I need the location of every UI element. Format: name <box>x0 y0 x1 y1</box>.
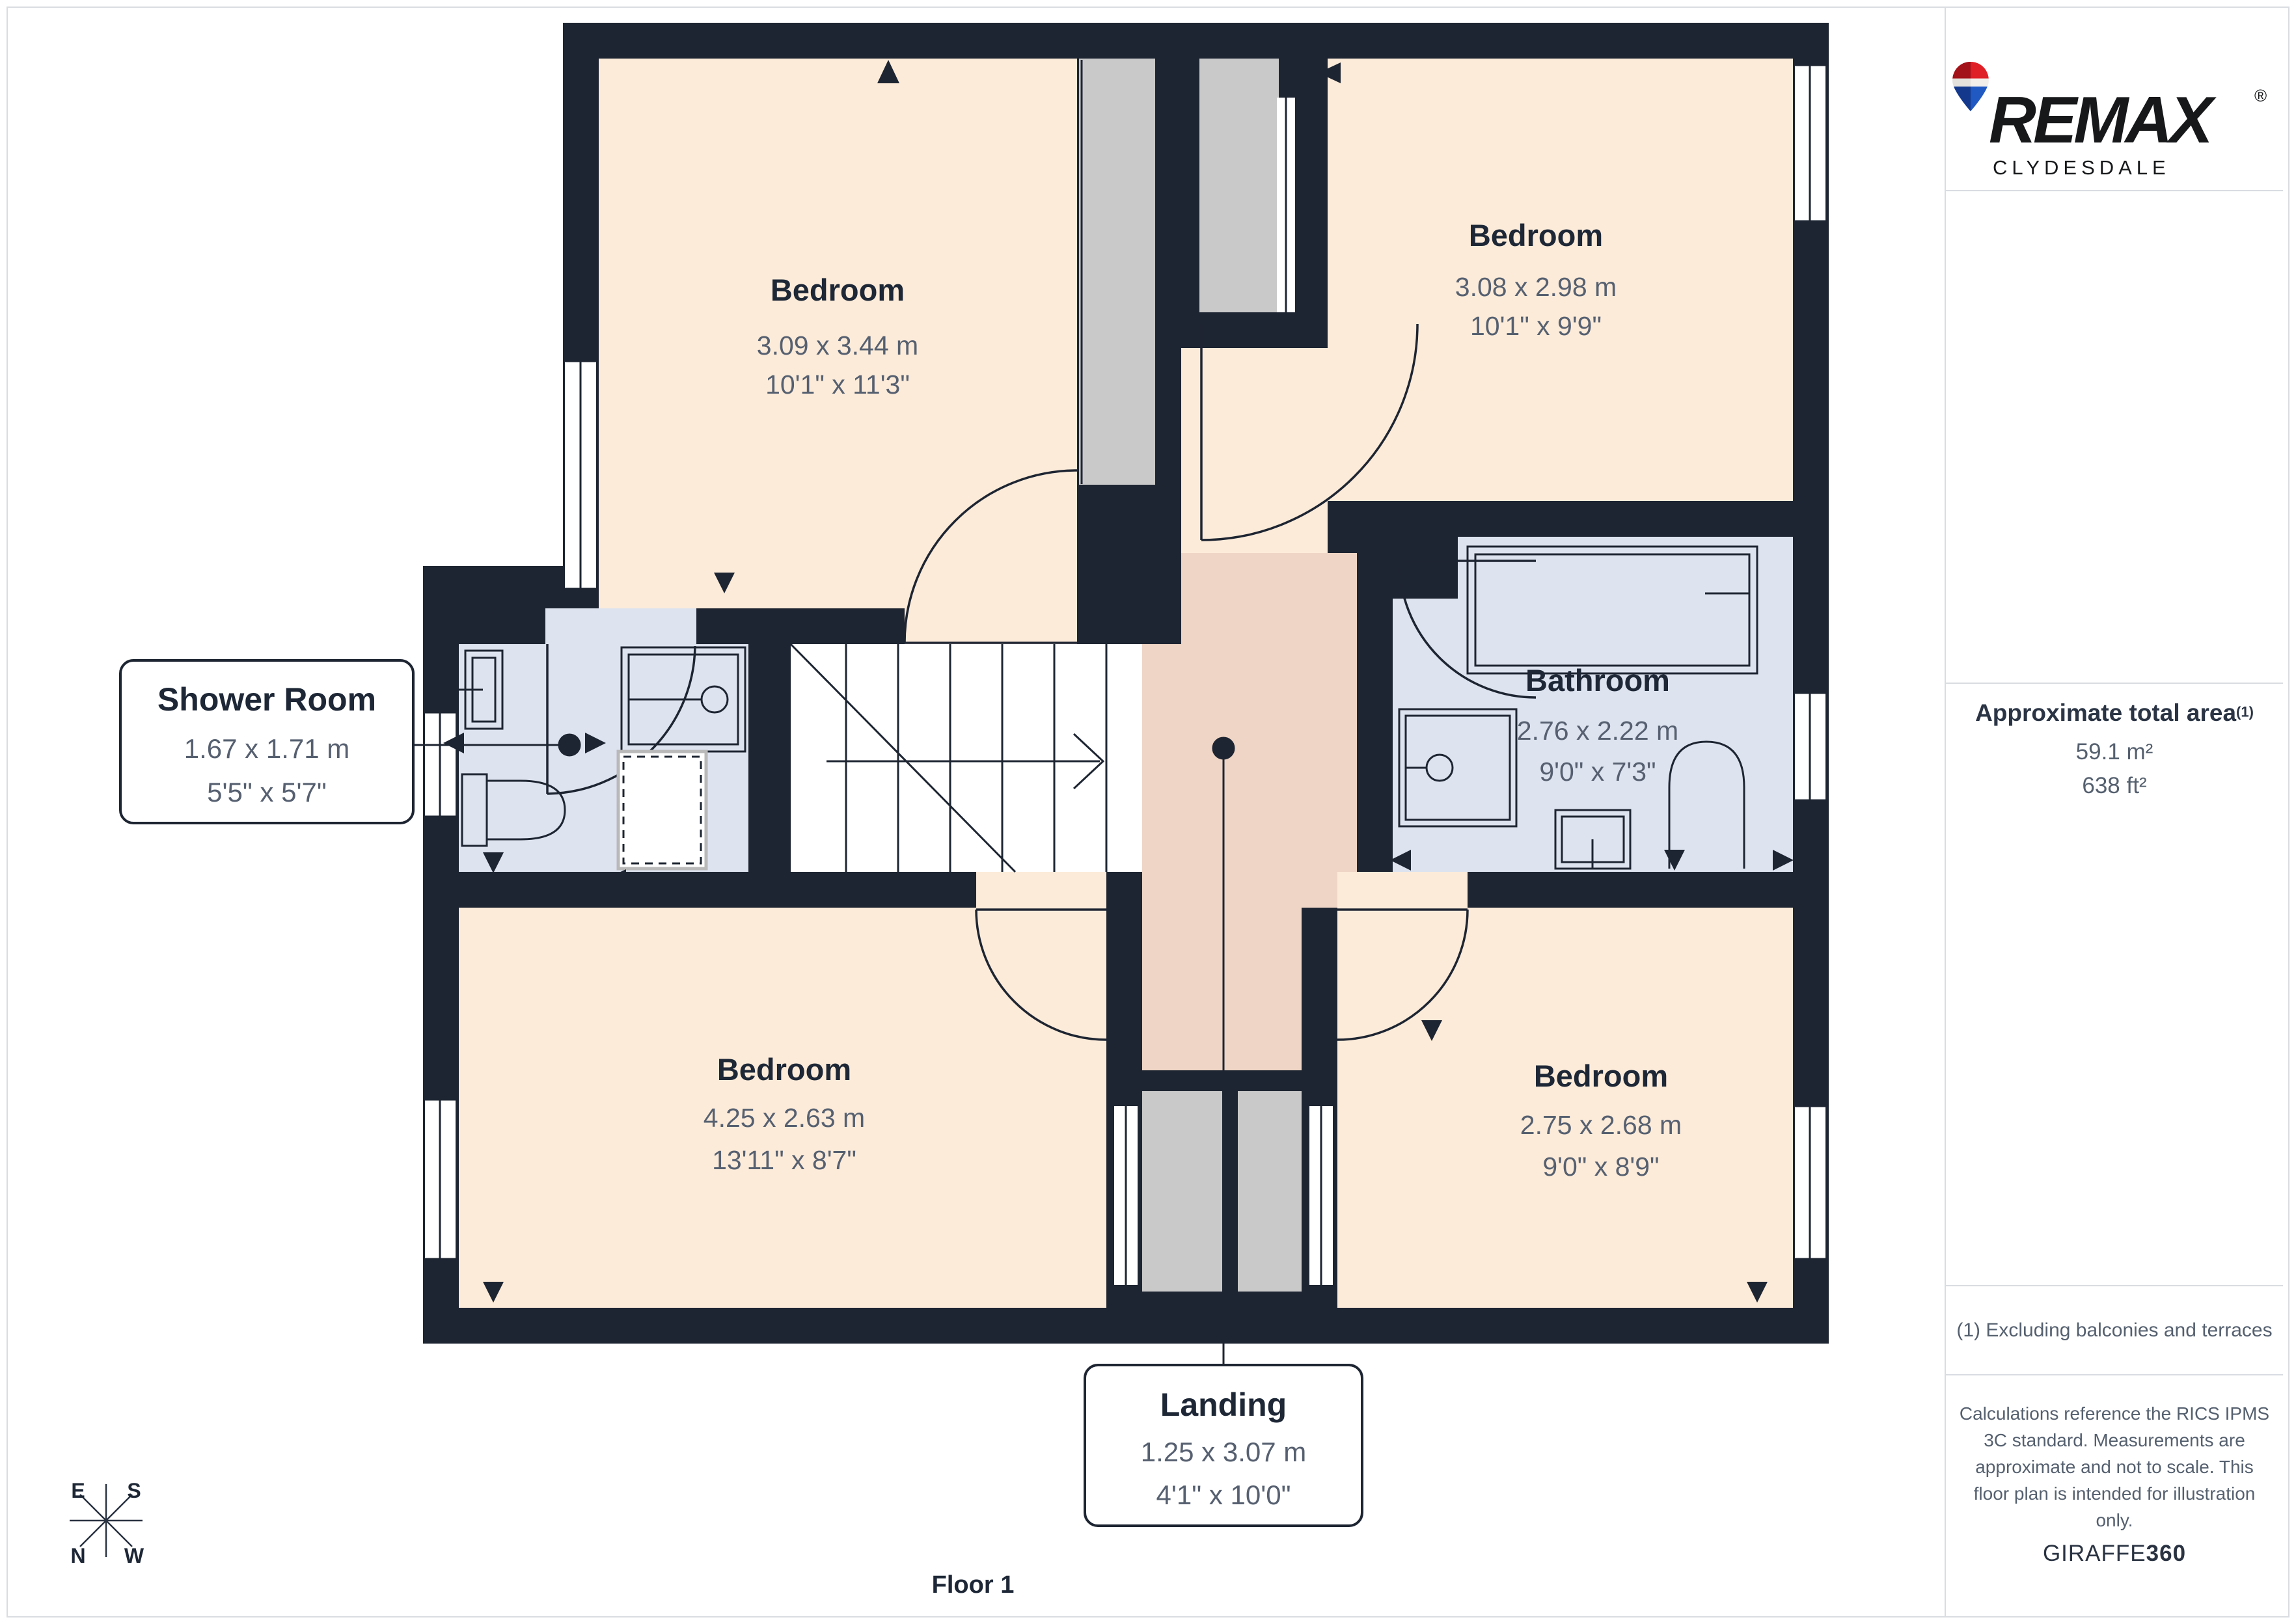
floor-plan: Bedroom 3.09 x 3.44 m 10'1" x 11'3" Bedr… <box>0 0 1945 1624</box>
compass-w: W <box>124 1544 144 1567</box>
window-bedroom-br <box>1795 1106 1825 1259</box>
area-metric: 59.1 m² <box>1946 739 2283 765</box>
disclaimer-text: Calculations reference the RICS IPMS 3C … <box>1959 1400 2270 1534</box>
compass-e: E <box>71 1479 85 1502</box>
remax-office-name: CLYDESDALE <box>1993 156 2170 180</box>
callout-shower-room: Shower Room 1.67 x 1.71 m 5'5" x 5'7" <box>120 660 413 823</box>
void-shaft-bottom-left <box>1142 1091 1222 1292</box>
area-summary: Approximate total area(1) <box>1946 699 2283 727</box>
landing-leader-dot <box>1213 738 1234 759</box>
bedroom-br-floor <box>1337 908 1793 1308</box>
window-void-right <box>1309 1106 1333 1285</box>
room-dim-metric: 1.67 x 1.71 m <box>184 733 349 764</box>
room-dim-metric: 3.09 x 3.44 m <box>757 331 918 360</box>
room-dim-metric: 1.25 x 3.07 m <box>1141 1437 1306 1467</box>
label-bedroom-tl: Bedroom 3.09 x 3.44 m 10'1" x 11'3" <box>757 273 918 399</box>
giraffe360-credit: GIRAFFE360 <box>1946 1541 2283 1567</box>
storage-hatch <box>618 751 706 869</box>
room-dim-metric: 4.25 x 2.63 m <box>704 1103 865 1133</box>
room-name: Bedroom <box>1469 218 1603 252</box>
room-dim-imperial: 10'1" x 9'9" <box>1470 311 1602 341</box>
window-bathroom <box>1795 693 1825 800</box>
void-shaft-bottom-right <box>1238 1091 1302 1292</box>
room-name: Bathroom <box>1525 663 1670 697</box>
door-gap-shower <box>545 608 696 644</box>
stairs-floor <box>791 644 1142 872</box>
window-bedroom-tr <box>1795 65 1825 221</box>
area-title-footnote-marker: (1) <box>2236 704 2254 720</box>
sidebar-rule-4 <box>1946 1374 2283 1375</box>
window-void-left <box>1114 1106 1138 1285</box>
label-bedroom-bl: Bedroom 4.25 x 2.63 m 13'11" x 8'7" <box>704 1052 865 1175</box>
room-name: Landing <box>1160 1387 1287 1423</box>
giraffe-suffix: 360 <box>2146 1541 2186 1566</box>
area-imperial: 638 ft² <box>1946 773 2283 799</box>
room-dim-imperial: 4'1" x 10'0" <box>1156 1480 1291 1510</box>
room-dim-imperial: 5'5" x 5'7" <box>207 777 327 807</box>
window-shaft-right <box>1277 98 1295 312</box>
door-gap-bedroom-tl <box>905 608 1077 644</box>
sidebar-rule-3 <box>1946 1285 2283 1286</box>
sidebar-rule-1 <box>1946 190 2283 191</box>
window-bedroom-tl <box>565 361 596 589</box>
door-gap-bedroom-bl <box>976 872 1106 908</box>
stair-shaft-right <box>1199 59 1279 312</box>
room-dim-imperial: 9'0" x 8'9" <box>1542 1152 1659 1182</box>
window-shower-room <box>425 712 456 817</box>
floor-label: Floor 1 <box>932 1571 1015 1599</box>
room-dim-imperial: 9'0" x 7'3" <box>1539 757 1656 787</box>
compass-icon: E S N W <box>70 1479 144 1567</box>
room-name: Shower Room <box>157 681 376 718</box>
room-dim-imperial: 13'11" x 8'7" <box>712 1145 856 1175</box>
label-bedroom-tr: Bedroom 3.08 x 2.98 m 10'1" x 9'9" <box>1455 218 1617 341</box>
window-bedroom-bl <box>425 1100 456 1259</box>
registered-mark: ® <box>2254 86 2267 106</box>
area-title: Approximate total area <box>1975 699 2236 726</box>
stair-shaft-left <box>1079 59 1155 485</box>
room-name: Bedroom <box>1534 1059 1668 1093</box>
remax-wordmark: REMAX <box>1989 83 2262 158</box>
sidebar-rule-2 <box>1946 683 2283 684</box>
room-dim-imperial: 10'1" x 11'3" <box>765 370 910 399</box>
room-name: Bedroom <box>717 1052 851 1087</box>
room-dim-metric: 2.76 x 2.22 m <box>1517 716 1678 746</box>
label-bathroom: Bathroom 2.76 x 2.22 m 9'0" x 7'3" <box>1517 663 1678 787</box>
shower-leader-dot <box>559 735 580 755</box>
callout-landing: Landing 1.25 x 3.07 m 4'1" x 10'0" <box>1085 1365 1362 1526</box>
compass-n: N <box>70 1544 85 1567</box>
compass-s: S <box>127 1479 141 1502</box>
room-name: Bedroom <box>771 273 905 307</box>
label-bedroom-br: Bedroom 2.75 x 2.68 m 9'0" x 8'9" <box>1520 1059 1682 1182</box>
room-dim-metric: 2.75 x 2.68 m <box>1520 1110 1682 1140</box>
room-dim-metric: 3.08 x 2.98 m <box>1455 272 1617 302</box>
giraffe-brand: GIRAFFE <box>2043 1541 2146 1566</box>
sidebar-divider <box>1945 7 1946 1617</box>
bedroom-tr-vestibule-floor <box>1181 348 1328 553</box>
area-footnote: (1) Excluding balconies and terraces <box>1946 1319 2283 1342</box>
remax-balloon-icon <box>1952 62 1989 111</box>
door-gap-bedroom-br <box>1337 872 1468 908</box>
